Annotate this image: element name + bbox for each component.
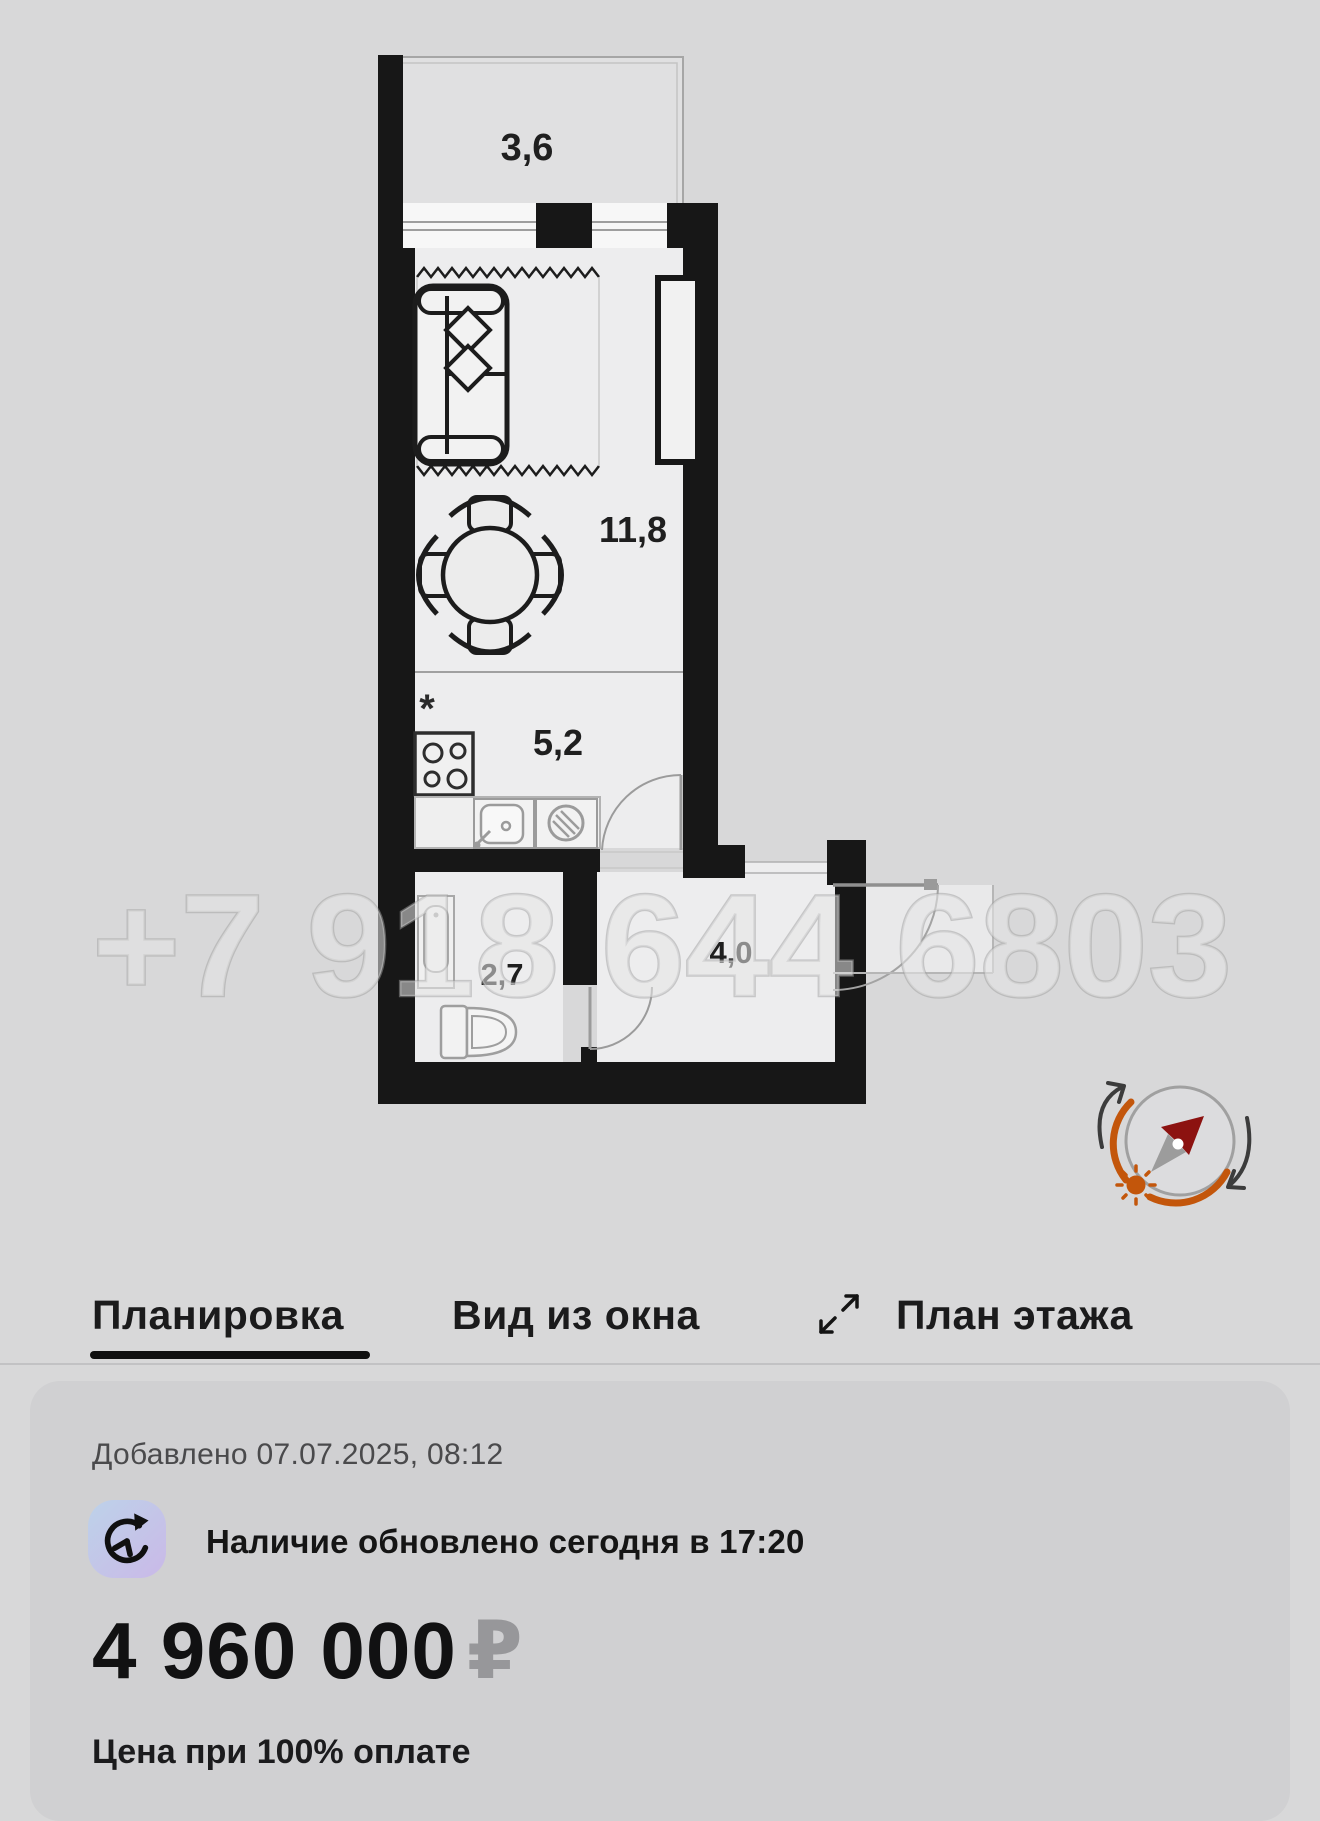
expand-arrows-icon[interactable] [813,1288,865,1340]
price-text: 4 960 000₽ [92,1611,524,1691]
price-currency-symbol: ₽ [467,1604,524,1697]
sun-icon [1117,1166,1155,1204]
availability-updated-text: Наличие обновлено сегодня в 17:20 [206,1523,805,1561]
living-area-label: 11,8 [599,509,667,550]
clock-refresh-icon [88,1500,166,1578]
listing-details-card: Добавлено 07.07.2025, 08:12 Наличие обно… [30,1381,1290,1821]
kitchen-area-label: 5,2 [533,722,583,763]
wardrobe-icon [658,278,698,462]
compass-rotate-control[interactable] [1100,1083,1250,1204]
added-date-text: Добавлено 07.07.2025, 08:12 [92,1438,504,1472]
price-value: 4 960 000 [92,1606,457,1695]
tab-layout[interactable]: Планировка [92,1292,344,1339]
kitchen-sink-icon [474,799,535,849]
washing-machine-icon [536,799,597,848]
tabs-divider [0,1363,1320,1365]
price-note-text: Цена при 100% оплате [92,1733,470,1772]
tab-floor-plan[interactable]: План этажа [896,1292,1133,1339]
active-tab-underline [90,1351,370,1359]
window-icons [403,203,667,248]
note-asterisk: * [419,687,435,731]
sofa-icon [415,286,507,464]
watermark-phone: +7 918 644 6803 [92,864,1232,1027]
stove-icon [415,733,473,795]
floor-plan-image: 3,6 11,8 5,2 2,7 4,0 * +7 918 644 6803 [0,0,1320,1280]
tab-window-view[interactable]: Вид из окна [452,1292,700,1339]
balcony-area-label: 3,6 [501,127,554,169]
